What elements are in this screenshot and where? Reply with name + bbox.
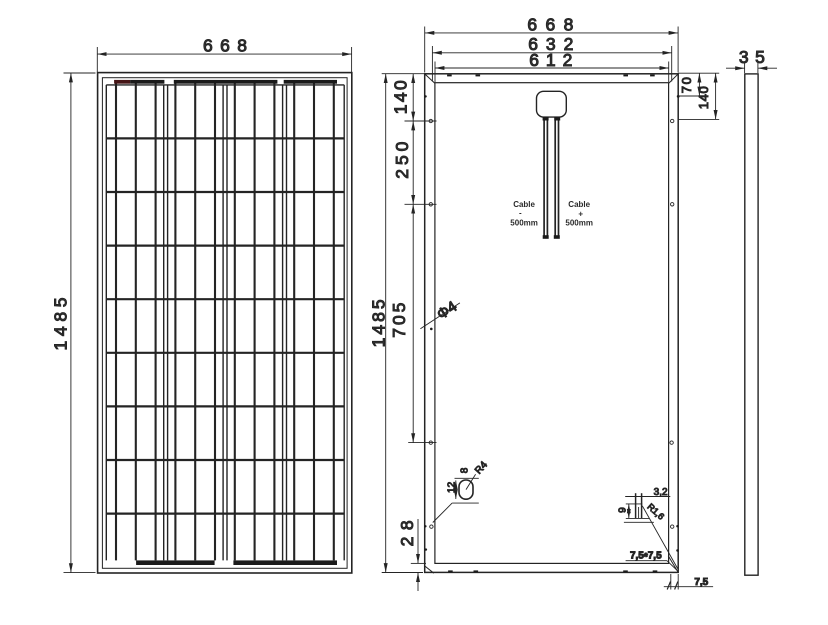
svg-text:+: + [578, 209, 583, 218]
svg-text:Cable: Cable [568, 200, 590, 209]
svg-text:1485: 1485 [51, 298, 71, 351]
svg-text:8: 8 [459, 467, 470, 473]
svg-text:-: - [519, 208, 522, 217]
svg-text:R4: R4 [473, 459, 490, 476]
svg-text:28: 28 [397, 520, 417, 546]
svg-text:250: 250 [392, 141, 412, 178]
svg-text:500mm: 500mm [510, 218, 538, 227]
svg-text:140: 140 [696, 86, 711, 109]
svg-text:70: 70 [679, 77, 694, 93]
svg-text:668: 668 [203, 36, 247, 56]
svg-text:Cable: Cable [513, 200, 535, 209]
svg-text:705: 705 [389, 303, 409, 338]
svg-text:12: 12 [447, 481, 458, 493]
svg-text:Φ4: Φ4 [434, 298, 460, 323]
svg-text:35: 35 [739, 47, 765, 67]
svg-text:668: 668 [527, 14, 573, 34]
svg-text:140: 140 [391, 80, 411, 114]
svg-text:7,5: 7,5 [694, 577, 708, 588]
svg-text:9: 9 [617, 507, 628, 513]
svg-text:500mm: 500mm [565, 218, 593, 227]
svg-text:3,2: 3,2 [654, 487, 668, 498]
svg-text:7,5*7,5: 7,5*7,5 [630, 550, 662, 563]
svg-text:612: 612 [529, 50, 572, 70]
